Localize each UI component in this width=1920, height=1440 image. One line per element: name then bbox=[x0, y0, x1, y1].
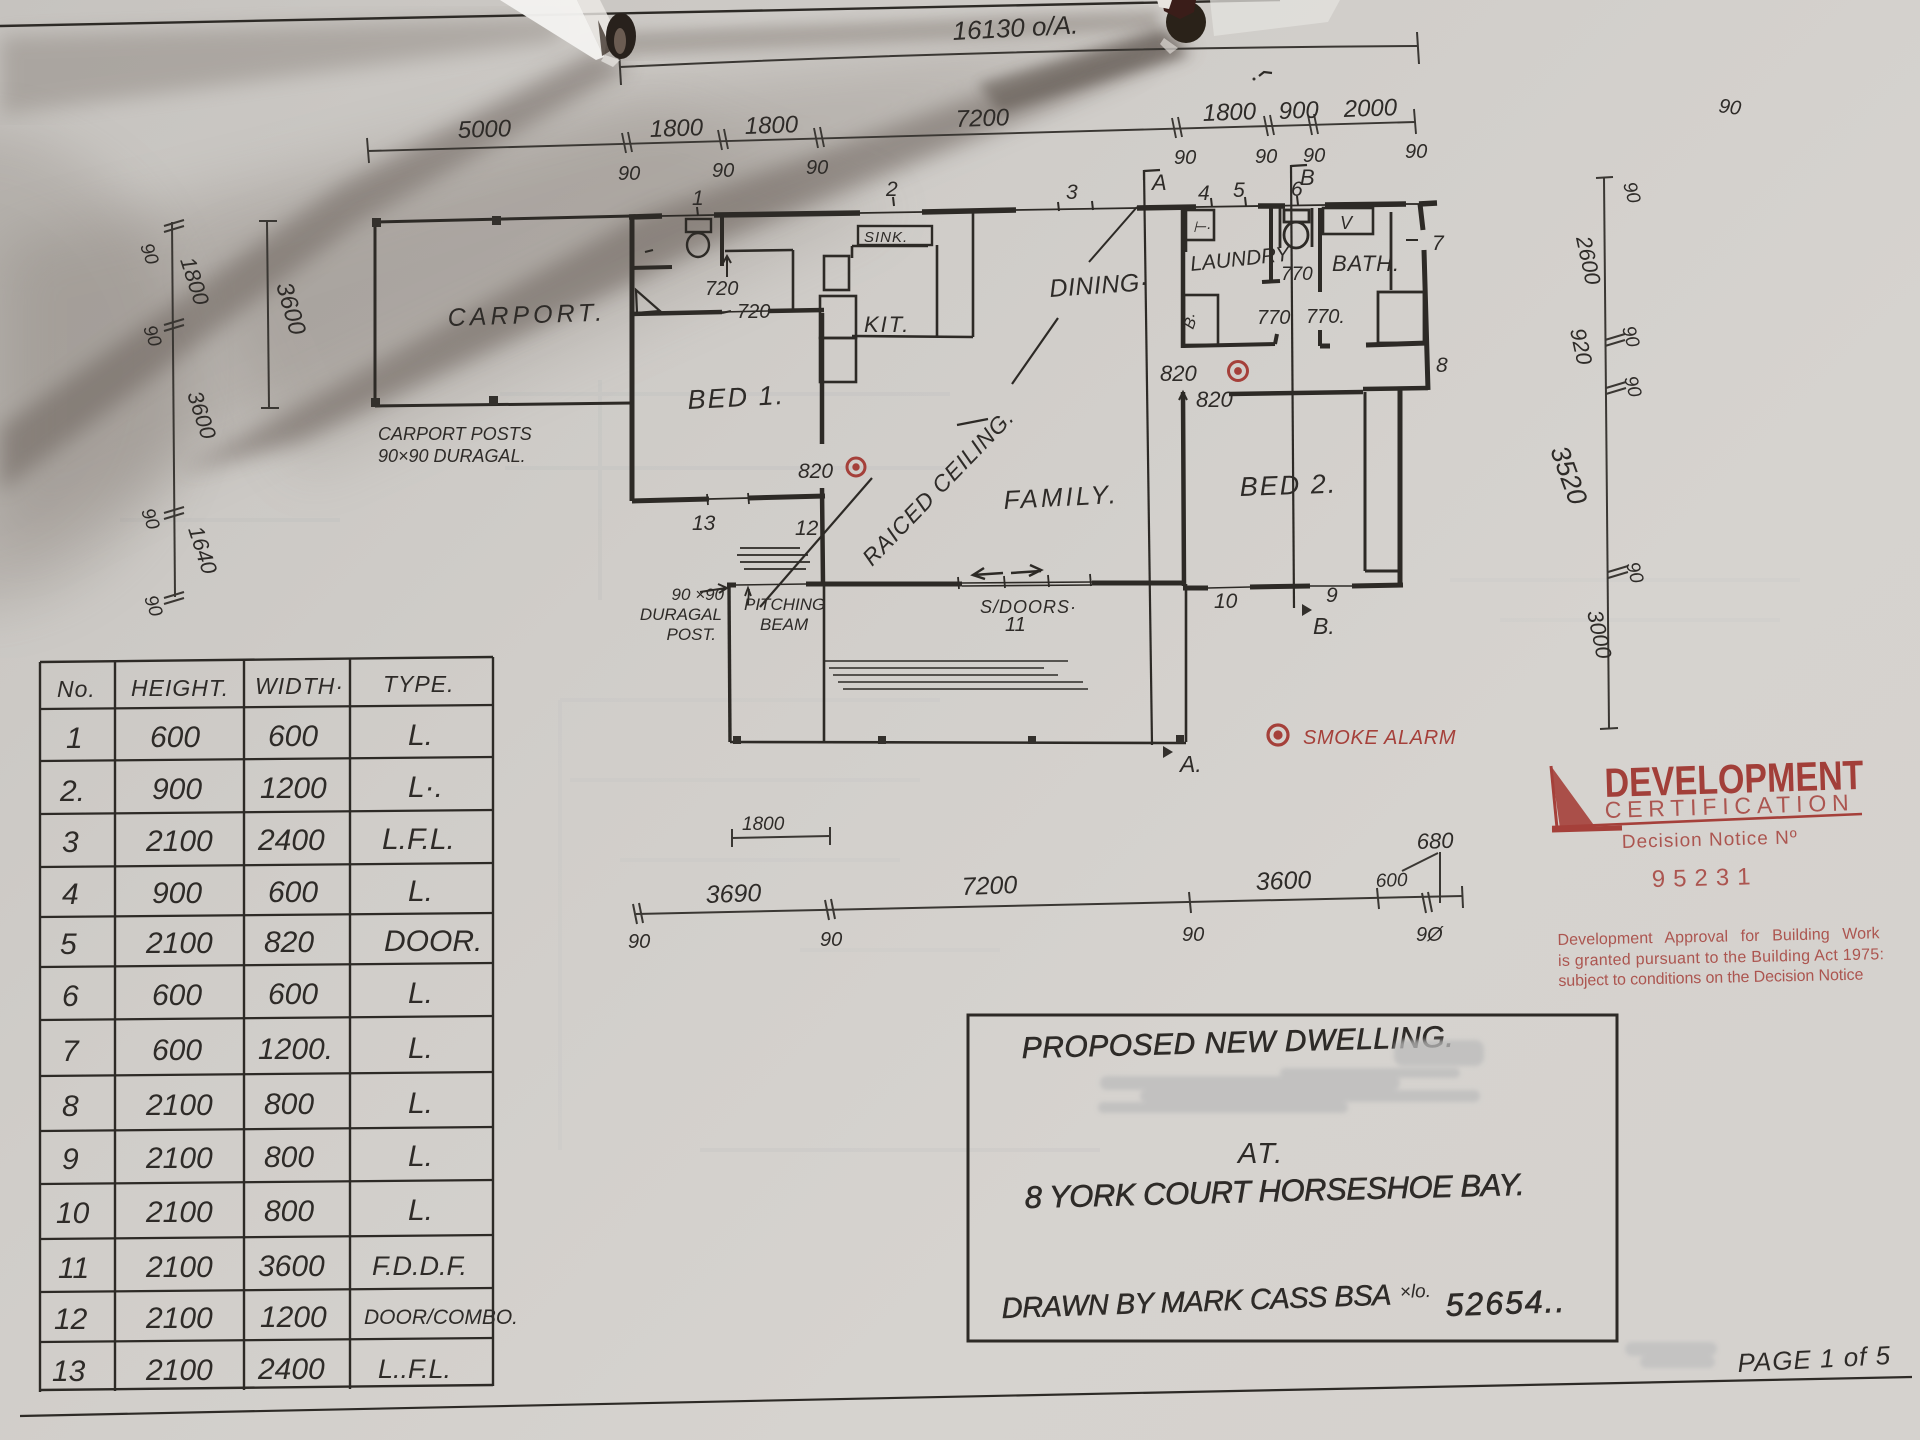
svg-text:7200: 7200 bbox=[955, 104, 1010, 133]
svg-text:600: 600 bbox=[150, 721, 200, 754]
svg-text:5: 5 bbox=[1233, 179, 1245, 202]
svg-text:L.: L. bbox=[408, 1194, 433, 1227]
svg-text:600: 600 bbox=[152, 979, 202, 1012]
svg-text:2100: 2100 bbox=[145, 1354, 213, 1387]
svg-text:720: 720 bbox=[737, 301, 770, 323]
svg-text:V: V bbox=[1340, 213, 1354, 233]
svg-text:680: 680 bbox=[1416, 828, 1454, 854]
svg-text:90: 90 bbox=[806, 157, 828, 179]
svg-text:11: 11 bbox=[1005, 614, 1026, 636]
svg-text:1800: 1800 bbox=[742, 814, 785, 835]
svg-text:900: 900 bbox=[152, 773, 202, 806]
svg-text:90: 90 bbox=[1717, 95, 1742, 120]
svg-text:800: 800 bbox=[264, 1088, 314, 1121]
svg-text:1: 1 bbox=[692, 187, 704, 210]
svg-text:90: 90 bbox=[1255, 146, 1277, 168]
svg-text:DOOR.: DOOR. bbox=[384, 925, 482, 958]
svg-text:770.: 770. bbox=[1306, 306, 1345, 328]
svg-text:600: 600 bbox=[1375, 870, 1408, 892]
svg-text:FAMILY.: FAMILY. bbox=[1003, 479, 1120, 515]
svg-text:L.: L. bbox=[408, 1087, 433, 1120]
svg-text:12: 12 bbox=[795, 517, 819, 540]
svg-text:L.: L. bbox=[408, 1032, 433, 1065]
svg-text:SMOKE ALARM: SMOKE ALARM bbox=[1303, 727, 1458, 749]
svg-text:8: 8 bbox=[1436, 354, 1448, 377]
svg-text:820: 820 bbox=[1196, 387, 1233, 412]
svg-text:2100: 2100 bbox=[145, 1251, 213, 1284]
svg-text:2100: 2100 bbox=[145, 927, 213, 960]
svg-text:90: 90 bbox=[618, 163, 640, 185]
svg-text:3600: 3600 bbox=[1255, 866, 1312, 896]
svg-text:S/DOORS·: S/DOORS· bbox=[980, 597, 1077, 617]
svg-text:800: 800 bbox=[264, 1195, 314, 1228]
svg-text:95231: 95231 bbox=[1651, 863, 1758, 893]
svg-text:5000: 5000 bbox=[457, 115, 512, 144]
svg-text:A: A bbox=[1150, 170, 1167, 195]
svg-text:2.: 2. bbox=[59, 775, 85, 808]
svg-text:1200.: 1200. bbox=[258, 1033, 333, 1066]
svg-text:B: B bbox=[1300, 165, 1315, 190]
svg-text:7: 7 bbox=[62, 1035, 80, 1068]
svg-text:3600: 3600 bbox=[258, 1250, 325, 1283]
svg-text:B.: B. bbox=[1313, 613, 1335, 639]
svg-text:2100: 2100 bbox=[145, 1089, 213, 1122]
svg-text:TYPE.: TYPE. bbox=[383, 671, 454, 697]
svg-text:No.: No. bbox=[57, 676, 96, 702]
svg-text:12: 12 bbox=[54, 1303, 88, 1336]
svg-text:2000: 2000 bbox=[1342, 94, 1398, 123]
svg-text:90 ×90: 90 ×90 bbox=[672, 585, 725, 604]
svg-text:11: 11 bbox=[58, 1252, 89, 1285]
svg-text:4: 4 bbox=[62, 878, 79, 911]
svg-text:4: 4 bbox=[1198, 182, 1210, 205]
svg-text:L.: L. bbox=[408, 1140, 433, 1173]
svg-text:PITCHING: PITCHING bbox=[744, 595, 825, 614]
svg-text:13: 13 bbox=[52, 1355, 86, 1388]
svg-text:F.D.D.F.: F.D.D.F. bbox=[372, 1251, 467, 1281]
svg-text:9Ø: 9Ø bbox=[1416, 924, 1444, 946]
svg-text:DURAGAL: DURAGAL bbox=[640, 605, 722, 624]
svg-text:90: 90 bbox=[1303, 145, 1325, 167]
svg-text:POST.: POST. bbox=[667, 625, 716, 644]
svg-text:1: 1 bbox=[66, 722, 83, 755]
svg-text:2400: 2400 bbox=[257, 824, 325, 857]
svg-text:7: 7 bbox=[1432, 232, 1445, 255]
svg-text:720: 720 bbox=[705, 278, 738, 300]
svg-text:L.: L. bbox=[408, 719, 433, 752]
svg-text:3: 3 bbox=[62, 826, 79, 859]
svg-text:2100: 2100 bbox=[145, 825, 213, 858]
svg-text:9: 9 bbox=[1326, 584, 1338, 607]
svg-text:L.: L. bbox=[408, 875, 433, 908]
svg-text:900: 900 bbox=[152, 877, 202, 910]
svg-text:SINK.: SINK. bbox=[864, 229, 908, 246]
svg-text:600: 600 bbox=[152, 1034, 202, 1067]
svg-text:600: 600 bbox=[268, 978, 318, 1011]
svg-text:DOOR/COMBO.: DOOR/COMBO. bbox=[364, 1306, 518, 1329]
svg-text:×lo.: ×lo. bbox=[1399, 1281, 1431, 1303]
svg-text:BED 1.: BED 1. bbox=[687, 380, 786, 415]
svg-text:3690: 3690 bbox=[705, 879, 762, 909]
svg-text:1200: 1200 bbox=[260, 1301, 327, 1334]
svg-text:600: 600 bbox=[268, 876, 318, 909]
svg-text:2: 2 bbox=[885, 178, 898, 201]
svg-text:AT.: AT. bbox=[1236, 1138, 1284, 1170]
svg-text:A.: A. bbox=[1178, 751, 1202, 777]
svg-text:HEIGHT.: HEIGHT. bbox=[131, 675, 229, 701]
svg-text:KIT.: KIT. bbox=[864, 312, 910, 337]
svg-text:2100: 2100 bbox=[145, 1302, 213, 1335]
svg-text:90: 90 bbox=[1182, 924, 1204, 946]
svg-text:13: 13 bbox=[692, 512, 716, 535]
svg-text:90: 90 bbox=[820, 929, 842, 951]
svg-text:90: 90 bbox=[712, 160, 734, 182]
svg-text:7200: 7200 bbox=[961, 871, 1018, 901]
svg-text:⊢·: ⊢· bbox=[1193, 219, 1211, 236]
svg-text:5: 5 bbox=[60, 928, 77, 961]
svg-text:1200: 1200 bbox=[260, 772, 327, 805]
svg-text:820: 820 bbox=[1160, 361, 1197, 386]
svg-text:1800: 1800 bbox=[744, 111, 799, 140]
svg-text:2100: 2100 bbox=[145, 1142, 213, 1175]
svg-text:WIDTH·: WIDTH· bbox=[255, 673, 344, 699]
svg-text:1800: 1800 bbox=[649, 114, 704, 143]
svg-text:900: 900 bbox=[1278, 97, 1320, 125]
svg-text:2400: 2400 bbox=[257, 1353, 325, 1386]
svg-text:90: 90 bbox=[1405, 141, 1427, 163]
svg-text:CARPORT.: CARPORT. bbox=[447, 298, 606, 332]
svg-text:770: 770 bbox=[1257, 307, 1290, 329]
svg-text:800: 800 bbox=[264, 1141, 314, 1174]
svg-text:L..F.L.: L..F.L. bbox=[378, 1354, 451, 1384]
svg-text:10: 10 bbox=[1214, 590, 1238, 613]
svg-text:9: 9 bbox=[62, 1143, 79, 1176]
svg-text:90: 90 bbox=[1174, 147, 1196, 169]
svg-text:BEAM: BEAM bbox=[760, 615, 809, 634]
svg-text:600: 600 bbox=[268, 720, 318, 753]
svg-text:8: 8 bbox=[62, 1090, 79, 1123]
svg-text:90: 90 bbox=[628, 931, 650, 953]
svg-text:10: 10 bbox=[56, 1197, 90, 1230]
svg-text:L.F.L.: L.F.L. bbox=[382, 823, 455, 856]
svg-text:1800: 1800 bbox=[1202, 98, 1257, 127]
svg-text:CARPORT POSTS: CARPORT POSTS bbox=[378, 424, 532, 444]
svg-text:2100: 2100 bbox=[145, 1196, 213, 1229]
svg-text:L·.: L·. bbox=[408, 771, 443, 804]
svg-text:820: 820 bbox=[798, 460, 833, 483]
svg-text:3: 3 bbox=[1066, 181, 1078, 204]
svg-text:52654..: 52654.. bbox=[1445, 1283, 1567, 1323]
svg-text:L.: L. bbox=[408, 977, 433, 1010]
svg-text:BED 2.: BED 2. bbox=[1239, 469, 1338, 502]
svg-text:820: 820 bbox=[264, 926, 314, 959]
svg-text:90×90 DURAGAL.: 90×90 DURAGAL. bbox=[378, 446, 526, 466]
svg-text:6: 6 bbox=[62, 980, 79, 1013]
svg-text:770: 770 bbox=[1281, 264, 1313, 285]
